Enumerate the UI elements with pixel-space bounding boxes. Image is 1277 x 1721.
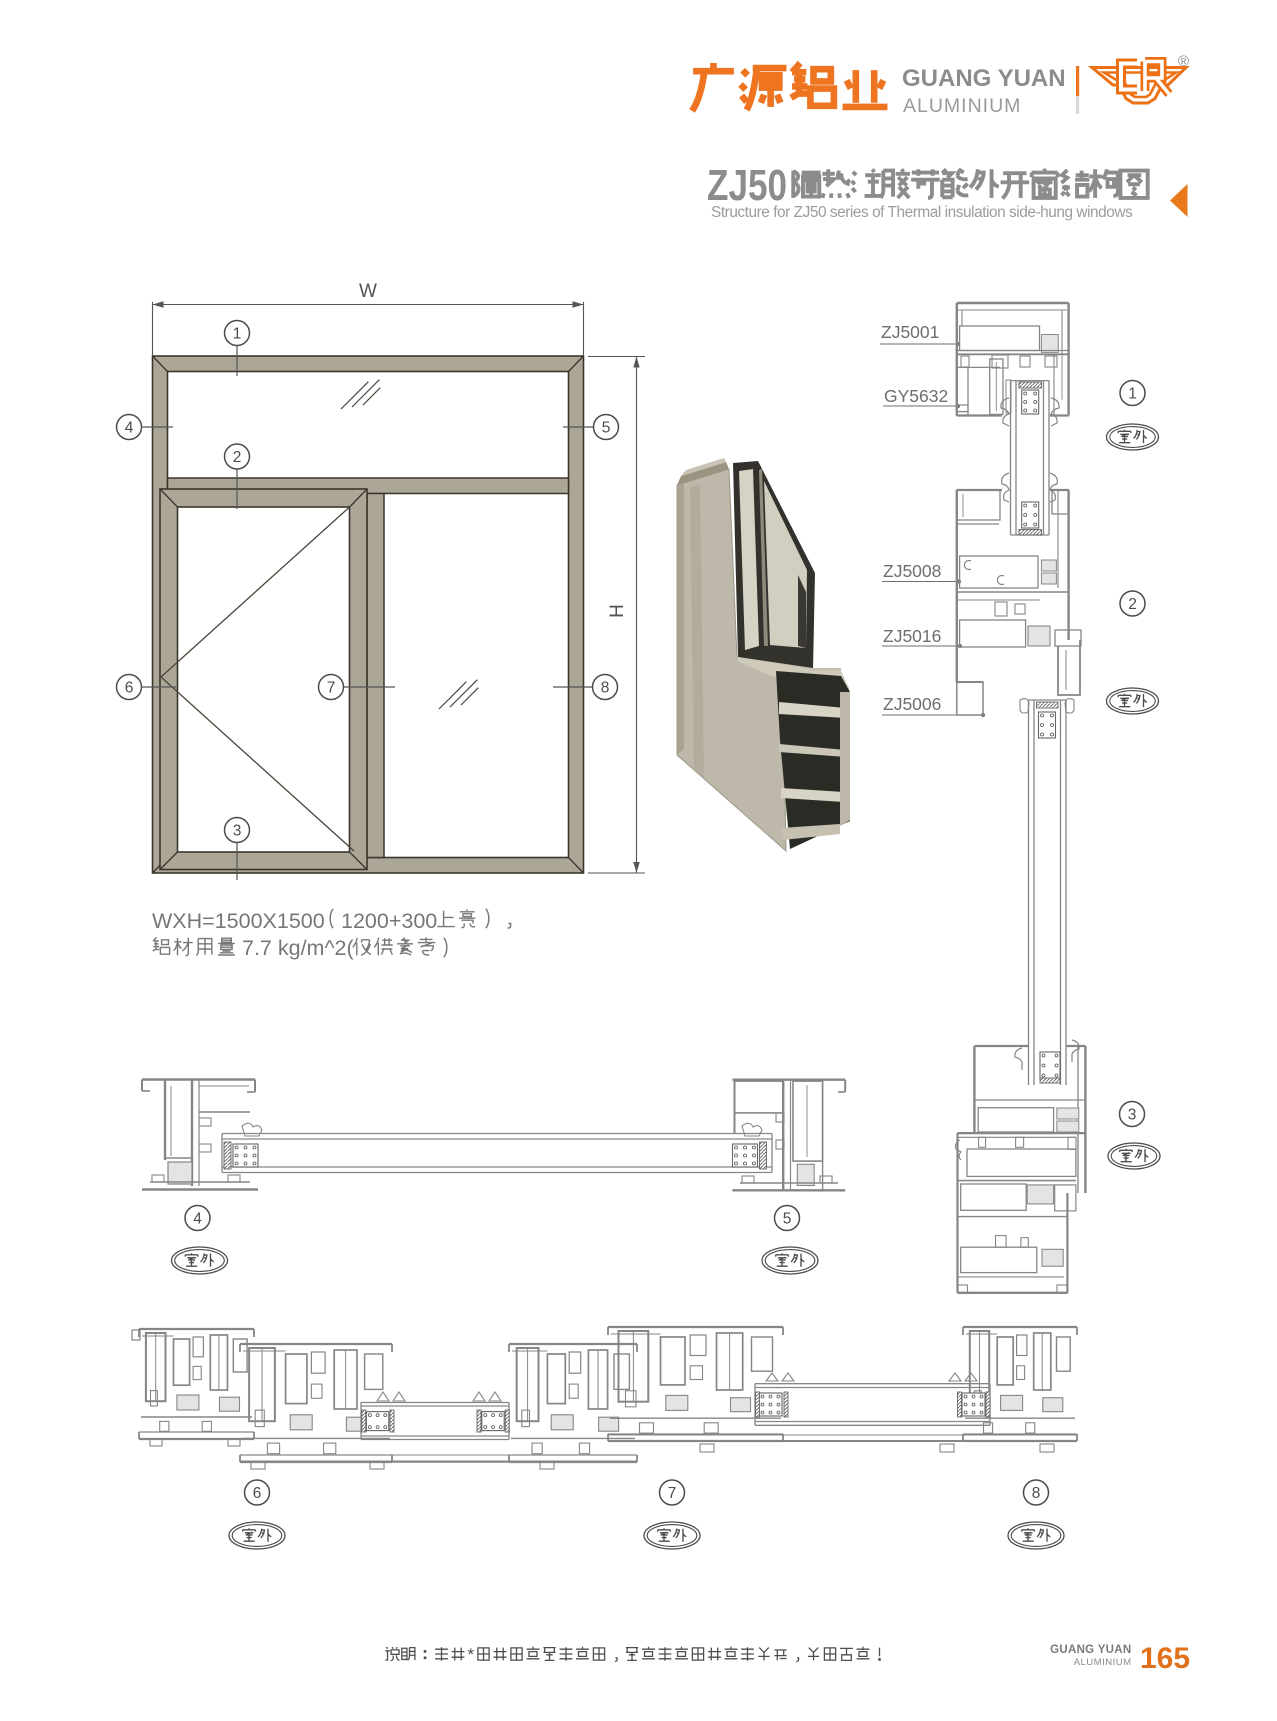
svg-text:3: 3	[233, 823, 242, 840]
svg-text:8: 8	[1032, 1485, 1041, 1502]
svg-text:*: *	[468, 1645, 475, 1664]
svg-text:4: 4	[193, 1211, 202, 1228]
svg-text:165: 165	[1140, 1642, 1190, 1675]
svg-text:ZJ50: ZJ50	[707, 161, 787, 210]
svg-text:WXH=1500X1500: WXH=1500X1500	[152, 909, 325, 933]
svg-text:8: 8	[601, 680, 610, 697]
svg-text:GUANG YUAN: GUANG YUAN	[902, 65, 1066, 92]
svg-text:7: 7	[668, 1485, 677, 1502]
svg-text:Structure for ZJ50 series of T: Structure for ZJ50 series of Thermal ins…	[711, 204, 1133, 221]
svg-text:3: 3	[1128, 1107, 1137, 1124]
svg-text:7.7 kg/m^2(: 7.7 kg/m^2(	[242, 936, 354, 960]
svg-text:®: ®	[1178, 53, 1189, 70]
svg-text:1: 1	[1128, 386, 1137, 403]
svg-text:6: 6	[125, 680, 134, 697]
svg-text:ALUMINIUM: ALUMINIUM	[903, 95, 1021, 117]
svg-text:7: 7	[327, 680, 336, 697]
svg-text:2: 2	[233, 449, 242, 466]
svg-text:1200+300: 1200+300	[341, 909, 437, 933]
svg-text:5: 5	[783, 1211, 792, 1228]
svg-text:ZJ5008: ZJ5008	[883, 561, 941, 581]
svg-text:H: H	[607, 604, 628, 618]
svg-text:ALUMINIUM: ALUMINIUM	[1074, 1657, 1132, 1668]
svg-text:2: 2	[1128, 596, 1137, 613]
svg-text:1: 1	[233, 326, 242, 343]
svg-text:5: 5	[602, 420, 611, 437]
svg-text:W: W	[359, 281, 377, 302]
svg-text:ZJ5016: ZJ5016	[883, 626, 941, 646]
svg-text:4: 4	[125, 420, 134, 437]
svg-text:6: 6	[253, 1485, 262, 1502]
svg-text:ZJ5001: ZJ5001	[881, 322, 939, 342]
svg-text:GY5632: GY5632	[884, 386, 948, 406]
svg-text:GUANG YUAN: GUANG YUAN	[1050, 1644, 1131, 1656]
svg-text:ZJ5006: ZJ5006	[883, 694, 941, 714]
